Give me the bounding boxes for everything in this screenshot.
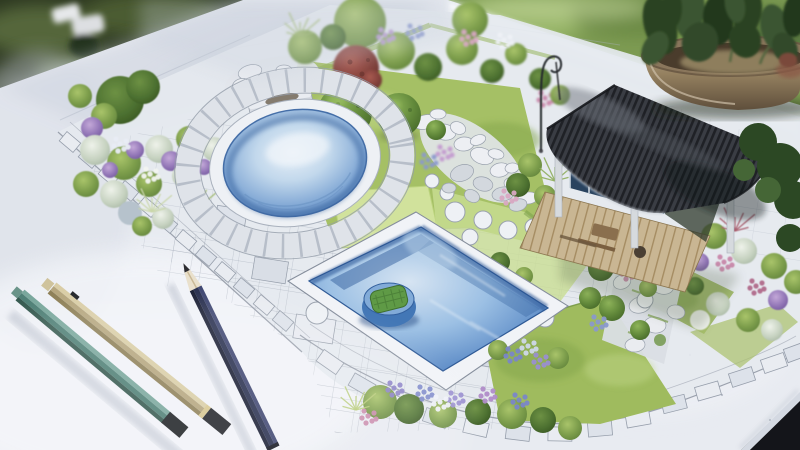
photo-garden-plan (0, 0, 800, 450)
garden-plan-photo (0, 0, 800, 450)
spa-island (359, 283, 419, 329)
